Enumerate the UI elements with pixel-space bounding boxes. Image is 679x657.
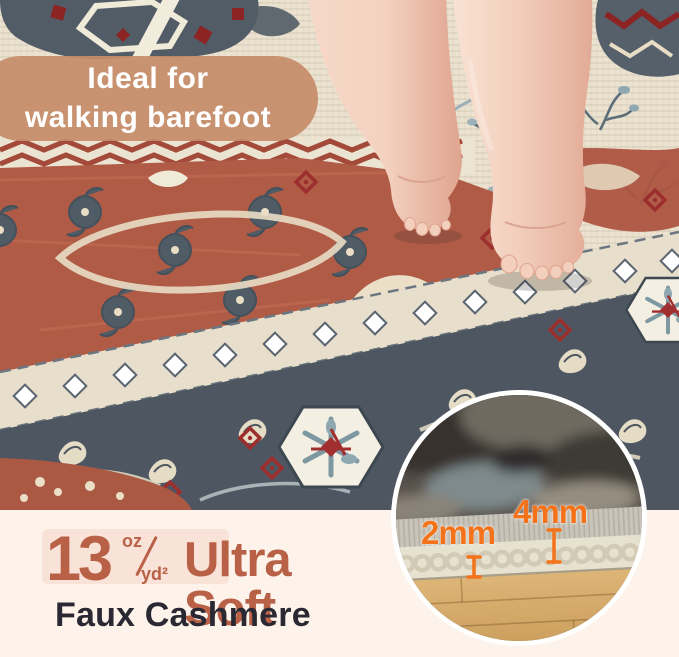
weight-unit-oz: oz [122, 531, 142, 552]
pile-measure-marker-icon [465, 555, 483, 584]
pile-height-label: 2mm [421, 514, 495, 552]
material-name: Faux Cashmere [55, 596, 311, 635]
badge-line-1: Ideal for [87, 60, 208, 98]
barefoot-badge: Ideal for walking barefoot [0, 56, 318, 141]
weight-value: 13 [46, 528, 110, 591]
product-image: Ideal for walking barefoot 13 oz yd² Ult… [0, 0, 679, 657]
weight-unit: oz yd² [118, 530, 176, 586]
total-height-label: 4mm [513, 493, 587, 531]
total-measure-marker-icon [545, 528, 563, 569]
weight-unit-yd2: yd² [141, 564, 168, 585]
badge-line-2: walking barefoot [25, 99, 271, 137]
